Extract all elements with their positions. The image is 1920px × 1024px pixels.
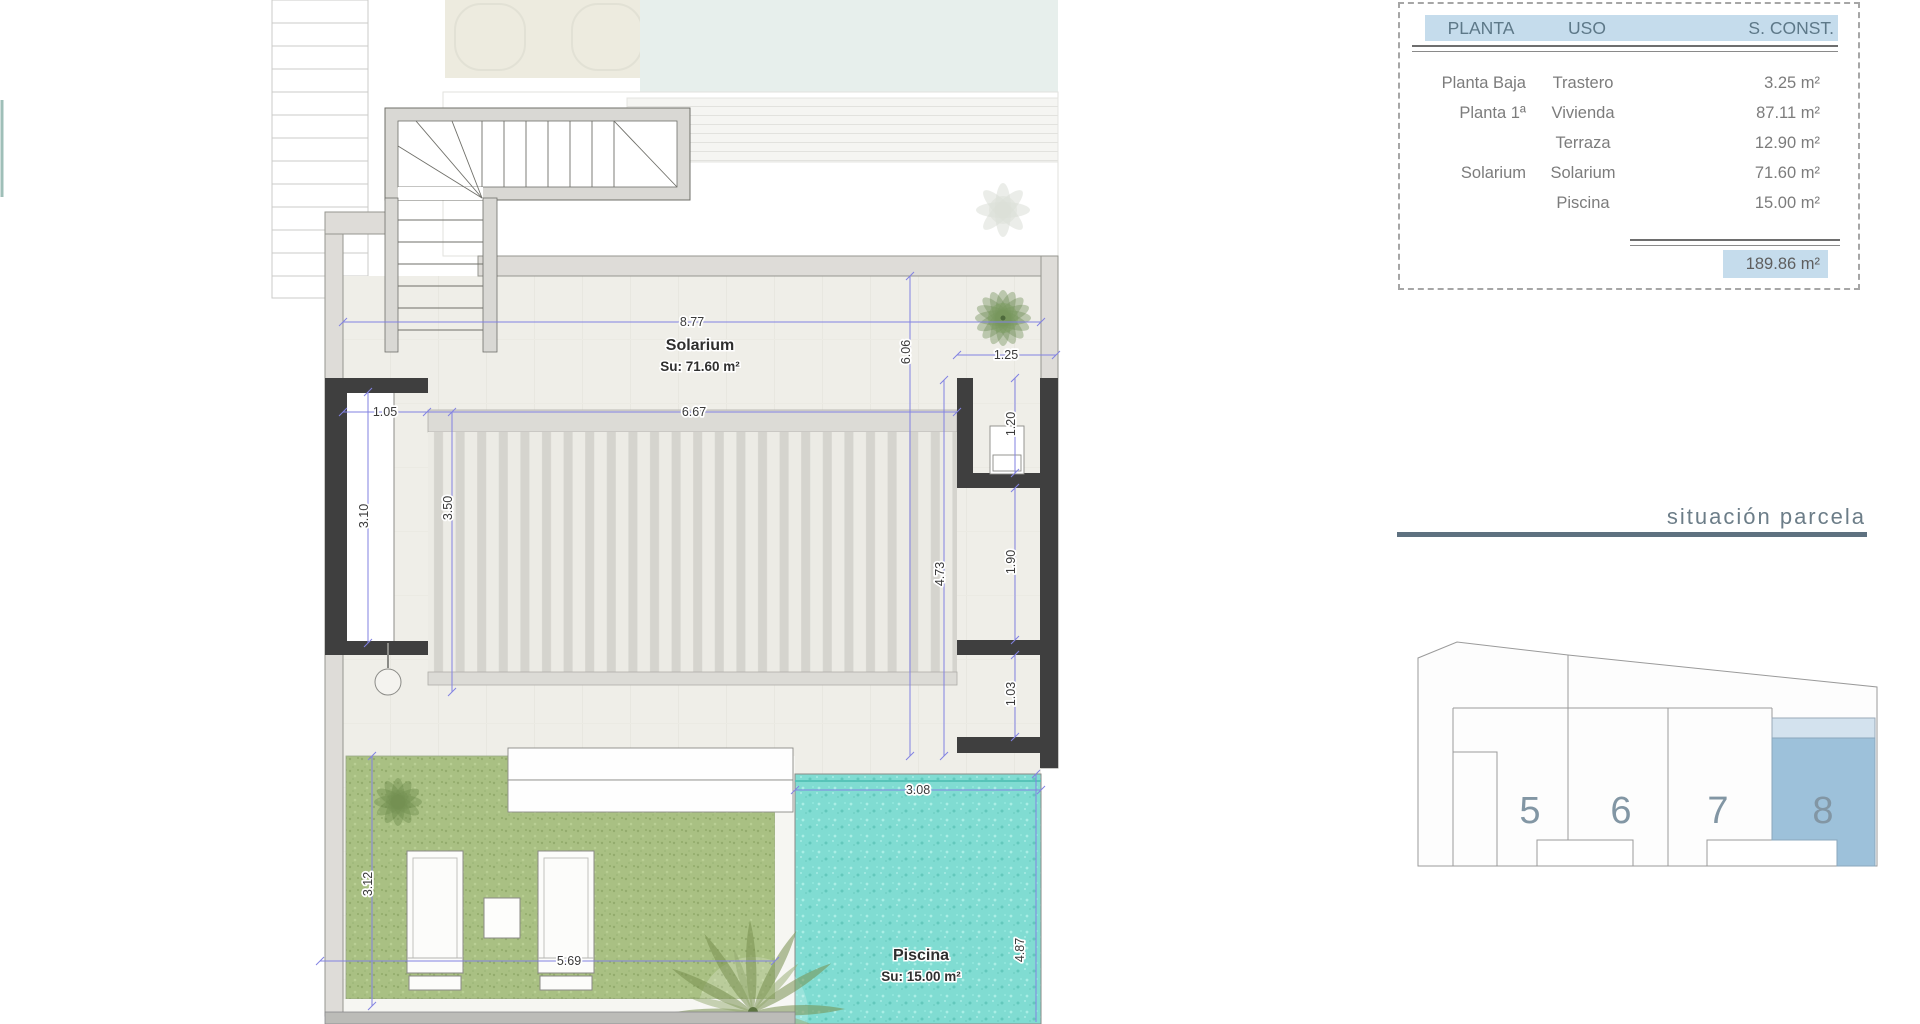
unit-label-8: 8 <box>1812 790 1833 832</box>
unit-8-band <box>1772 718 1875 738</box>
piscina-area-label: Su: 15.00 m² <box>881 969 961 984</box>
unit-label-6: 6 <box>1610 790 1631 832</box>
cell-planta: Solarium <box>1400 164 1526 183</box>
cell-planta: Planta 1ª <box>1400 104 1526 123</box>
dim-storage-width: 1.25 <box>994 348 1018 362</box>
table-row: Planta Baja Trastero 3.25 m² <box>1400 74 1858 96</box>
bench <box>508 748 793 812</box>
piscina-label: Piscina <box>893 947 949 964</box>
cell-sconst: 3.25 m² <box>1764 74 1820 93</box>
dim-pool-width: 3.08 <box>906 783 930 797</box>
dim-solarium-depth: 6.06 <box>899 340 913 364</box>
dim-solarium-width: 8.77 <box>680 315 704 329</box>
cell-planta: Planta Baja <box>1400 74 1526 93</box>
dim-pergola-depth: 3.50 <box>441 496 455 520</box>
sun-lounger <box>538 851 594 990</box>
dim-room-mid-depth: 1.90 <box>1004 550 1018 574</box>
surface-table: PLANTA USO S. CONST. Planta Baja Traster… <box>1398 2 1860 290</box>
dim-room-low-depth: 1.03 <box>1004 682 1018 706</box>
sun-lounger <box>407 851 463 990</box>
table-header-row: PLANTA USO S. CONST. <box>1425 15 1838 41</box>
col-header-sconst: S. CONST. <box>1748 15 1834 41</box>
col-header-uso: USO <box>1555 15 1619 41</box>
section-rule <box>1397 532 1867 537</box>
cell-sconst: 15.00 m² <box>1755 194 1820 213</box>
floor-plan-drawing: 8.77 6.06 1.25 6.67 1.05 3.10 3.50 4.73 … <box>0 0 1100 1024</box>
cell-uso: Terraza <box>1527 134 1639 153</box>
dim-stair-gap-width: 1.05 <box>373 405 397 419</box>
total-divider <box>1630 239 1840 246</box>
cell-sconst: 12.90 m² <box>1755 134 1820 153</box>
site-plan: 5 6 7 8 <box>1410 635 1880 875</box>
table-row: Solarium Solarium 71.60 m² <box>1400 164 1858 186</box>
cell-sconst: 87.11 m² <box>1756 104 1820 123</box>
cell-uso: Solarium <box>1527 164 1639 183</box>
cell-uso: Piscina <box>1527 194 1639 213</box>
dim-terrace-right-depth: 4.73 <box>933 562 947 586</box>
floorplan-page: 8.77 6.06 1.25 6.67 1.05 3.10 3.50 4.73 … <box>0 0 1920 1024</box>
solarium-area-label: Su: 71.60 m² <box>660 359 740 374</box>
col-header-planta: PLANTA <box>1425 15 1537 41</box>
unit-label-7: 7 <box>1707 790 1728 832</box>
tree-icon <box>976 183 1030 237</box>
pergola <box>428 410 957 685</box>
table-row: Piscina 15.00 m² <box>1400 194 1858 216</box>
dim-stair-void-height: 3.10 <box>357 504 371 528</box>
cell-sconst: 71.60 m² <box>1755 164 1820 183</box>
header-divider <box>1412 45 1838 52</box>
unit-label-5: 5 <box>1519 790 1540 832</box>
cell-uso: Trastero <box>1527 74 1639 93</box>
dim-pool-depth: 4.87 <box>1013 938 1027 962</box>
table-row: Terraza 12.90 m² <box>1400 134 1858 156</box>
section-title: situación parcela <box>1667 504 1866 530</box>
dim-pergola-width: 6.67 <box>682 405 706 419</box>
total-area: 189.86 m² <box>1723 250 1828 278</box>
pool <box>795 774 1041 1024</box>
bottom-boundary <box>325 1012 795 1024</box>
dim-garden-width: 5.69 <box>557 954 581 968</box>
table-row: Planta 1ª Vivienda 87.11 m² <box>1400 104 1858 126</box>
dim-garden-depth: 3.12 <box>361 872 375 896</box>
cell-uso: Vivienda <box>1527 104 1639 123</box>
dim-storage-depth: 1.20 <box>1004 412 1018 436</box>
side-table <box>484 898 520 938</box>
solarium-label: Solarium <box>666 337 734 354</box>
